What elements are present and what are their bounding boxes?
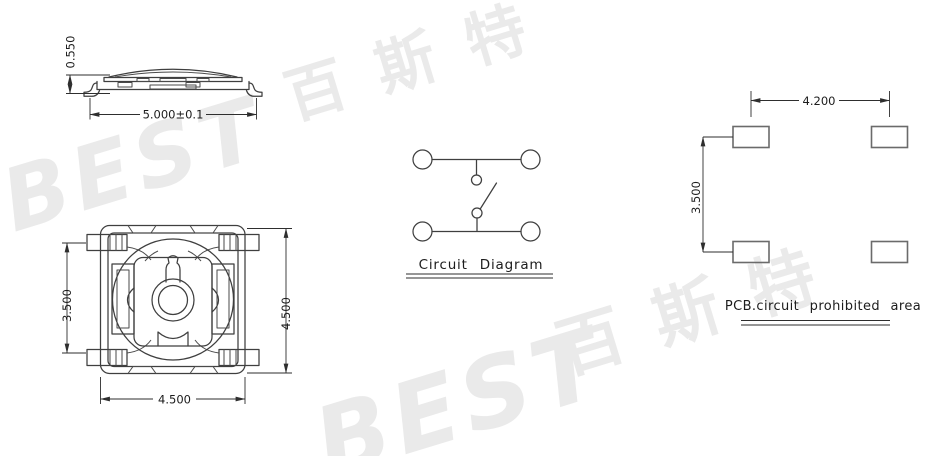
side-view-width-dimension-label: 5.000±0.1	[143, 108, 204, 122]
circuit-diagram-caption: Circuit Diagram	[419, 257, 544, 273]
top-view-center-hole	[159, 286, 188, 315]
pcb-width-dimension-label: 4.200	[803, 94, 836, 108]
drawing-canvas: BEST 百斯特 BEST 百斯特 0	[0, 0, 939, 456]
pcb-pad-bottom-right	[872, 242, 908, 263]
pcb-caption: PCB.circuit prohibited area	[725, 299, 921, 314]
watermark-cjk-text: 百斯特	[277, 0, 567, 134]
watermark-instance-top: BEST 百斯特	[0, 0, 577, 252]
top-view-contact-plates	[112, 264, 234, 334]
top-view-cover	[128, 256, 219, 346]
pcb-pitch-dimension-label: 3.500	[689, 181, 703, 214]
side-view-dome-arc	[109, 69, 237, 77]
pcb-pad-top-left	[733, 127, 769, 148]
tact-switch-datasheet-drawing: BEST 百斯特 BEST 百斯特 0	[0, 0, 939, 456]
top-view-height-dimension-label: 4.500	[279, 297, 293, 330]
side-view-height-dimension-label: 0.550	[64, 36, 78, 69]
circuit-caption-underline	[406, 274, 553, 278]
top-view-pitch-dimension-label: 3.500	[60, 289, 74, 322]
watermark-instance-bottom: BEST 百斯特	[301, 228, 868, 456]
circuit-switch-contact	[472, 175, 497, 218]
circuit-wires	[432, 160, 521, 232]
top-view-drawing: 3.500 4.500 4.500	[60, 226, 293, 407]
top-view-width-dimension-label: 4.500	[158, 393, 191, 407]
side-view-internal-details	[118, 79, 209, 90]
circuit-diagram-drawing: Circuit Diagram	[406, 150, 553, 278]
pcb-pad-top-right	[872, 127, 908, 148]
